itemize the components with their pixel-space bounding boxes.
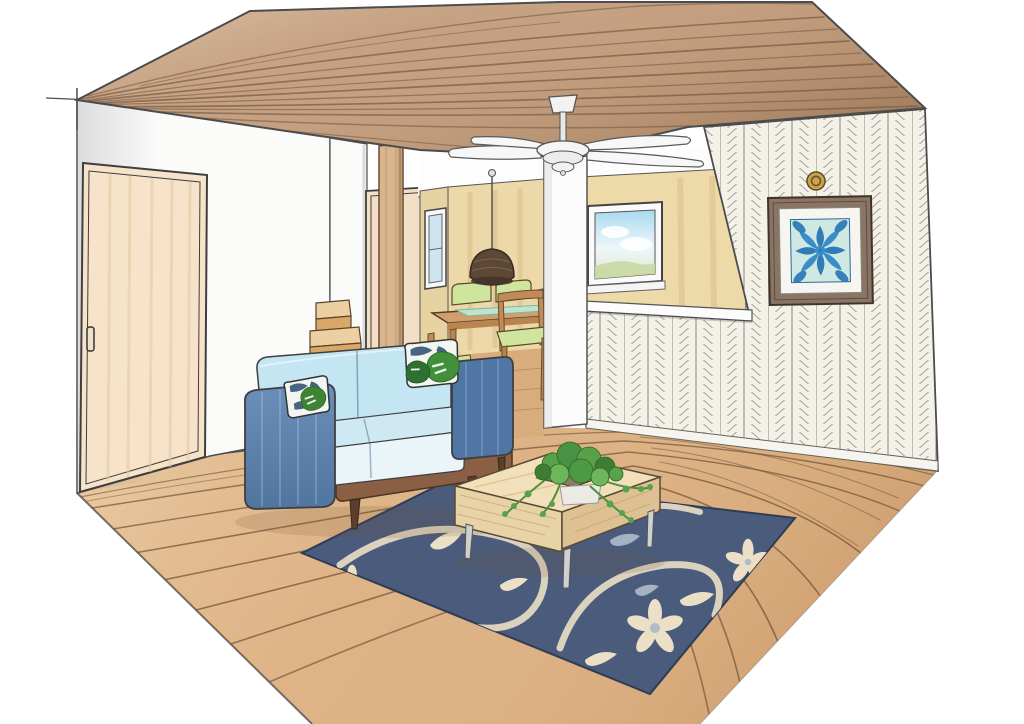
wall-medallion bbox=[807, 172, 825, 190]
structural-column bbox=[544, 156, 587, 428]
fan-canopy bbox=[549, 95, 577, 113]
illustration-living-room bbox=[0, 0, 1024, 724]
hawaiian-quilt-art bbox=[768, 196, 873, 305]
planter-pot bbox=[560, 484, 601, 505]
door-handle bbox=[87, 327, 94, 351]
throw-pillow bbox=[284, 375, 332, 418]
throw-pillow bbox=[403, 339, 461, 388]
scene-canvas bbox=[0, 0, 1024, 724]
cloud bbox=[620, 237, 652, 251]
fan-downrod bbox=[560, 112, 566, 142]
cloud bbox=[601, 226, 629, 238]
